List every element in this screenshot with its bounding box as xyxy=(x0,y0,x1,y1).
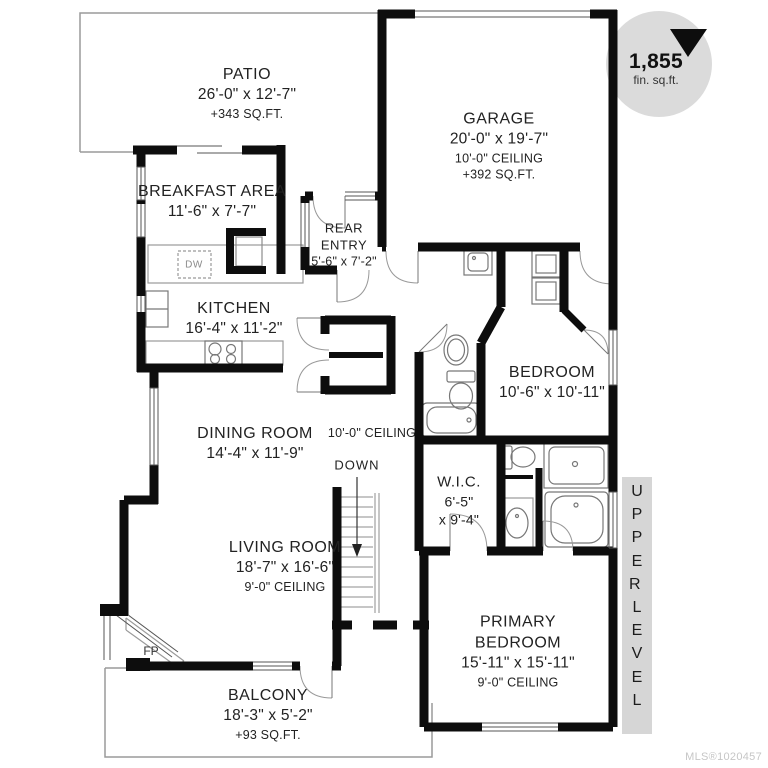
ensuite-fixtures xyxy=(501,443,608,548)
dishwasher-label: DW xyxy=(185,258,203,271)
pantry-walls xyxy=(230,232,266,270)
room-area: +392 SQ.FT. xyxy=(450,167,548,184)
room-name: BEDROOM xyxy=(461,633,575,654)
fridge xyxy=(146,291,168,327)
floor-plan-drawing xyxy=(0,0,768,768)
room-label-bedroom: BEDROOM 10'-6" x 10'-11" xyxy=(499,362,605,404)
fireplace-label: FP xyxy=(143,644,158,660)
pantry-appliance xyxy=(236,237,262,266)
room-name: ENTRY xyxy=(311,237,377,254)
toilet-bowl xyxy=(450,383,473,409)
room-ceiling: 10'-0" CEILING xyxy=(450,150,548,167)
room-dims: 5'-6" x 7'-2" xyxy=(311,254,377,271)
room-label-living: LIVING ROOM 18'-7" x 16'-6" 9'-0" CEILIN… xyxy=(229,537,341,595)
room-dims: 10'-6" x 10'-11" xyxy=(499,383,605,403)
room-name: PRIMARY xyxy=(461,611,575,632)
room-name: REAR xyxy=(311,220,377,237)
upper-level-label: UPPER LEVEL xyxy=(629,480,645,712)
bay-corner-wall xyxy=(126,658,150,671)
stove xyxy=(205,341,242,365)
room-dims: 16'-4" x 11'-2" xyxy=(185,319,282,339)
room-dims: 6'-5" xyxy=(437,492,481,510)
room-name: LIVING ROOM xyxy=(229,537,341,558)
hall-ceiling-note: 10'-0" CEILING xyxy=(328,425,416,442)
room-label-rear-entry: REAR ENTRY 5'-6" x 7'-2" xyxy=(311,220,377,271)
shower xyxy=(544,443,608,488)
staircase xyxy=(341,477,379,613)
room-area: +93 SQ.FT. xyxy=(223,727,313,744)
room-name: PATIO xyxy=(198,64,296,85)
room-dims: x 9'-4" xyxy=(437,511,481,529)
laundry-sink xyxy=(464,249,492,275)
sqft-badge-unit: fin. sq.ft. xyxy=(633,73,678,89)
room-label-kitchen: KITCHEN 16'-4" x 11'-2" xyxy=(185,298,282,340)
room-name: GARAGE xyxy=(450,109,548,130)
room-name: DINING ROOM xyxy=(197,423,313,444)
room-dims: 18'-3" x 5'-2" xyxy=(223,706,313,726)
room-dims: 18'-7" x 16'-6" xyxy=(229,558,341,578)
sqft-badge-value: 1,855 xyxy=(629,48,683,76)
bay-corner-wall xyxy=(100,604,128,616)
room-name: BEDROOM xyxy=(499,362,605,383)
stairs-down-label: DOWN xyxy=(334,456,379,473)
washer-dryer xyxy=(532,251,560,304)
room-area: +343 SQ.FT. xyxy=(198,106,296,123)
room-ceiling: 9'-0" CEILING xyxy=(229,579,341,596)
room-dims: 20'-0" x 19'-7" xyxy=(450,130,548,150)
room-name: BREAKFAST AREA xyxy=(138,181,286,202)
room-dims: 11'-6" x 7'-7" xyxy=(138,202,286,222)
room-name: KITCHEN xyxy=(185,298,282,319)
room-label-garage: GARAGE 20'-0" x 19'-7" 10'-0" CEILING +3… xyxy=(450,109,548,184)
room-label-balcony: BALCONY 18'-3" x 5'-2" +93 SQ.FT. xyxy=(223,685,313,743)
toilet-tank xyxy=(447,371,475,382)
room-dims: 15'-11" x 15'-11" xyxy=(461,654,575,674)
room-name: W.I.C. xyxy=(437,473,481,493)
room-label-primary: PRIMARY BEDROOM 15'-11" x 15'-11" 9'-0" … xyxy=(461,611,575,690)
room-label-dining: DINING ROOM 14'-4" x 11'-9" xyxy=(197,423,313,465)
floor-plan: PATIO 26'-0" x 12'-7" +343 SQ.FT. GARAGE… xyxy=(0,0,768,768)
room-label-wic: W.I.C. 6'-5" x 9'-4" xyxy=(437,473,481,530)
mls-watermark: MLS®1020457 xyxy=(685,751,762,763)
room-ceiling: 9'-0" CEILING xyxy=(461,674,575,691)
room-label-patio: PATIO 26'-0" x 12'-7" +343 SQ.FT. xyxy=(198,64,296,122)
toilet-bowl xyxy=(511,447,535,467)
room-dims: 14'-4" x 11'-9" xyxy=(197,444,313,464)
room-label-breakfast: BREAKFAST AREA 11'-6" x 7'-7" xyxy=(138,181,286,223)
room-name: BALCONY xyxy=(223,685,313,706)
room-dims: 26'-0" x 12'-7" xyxy=(198,85,296,105)
